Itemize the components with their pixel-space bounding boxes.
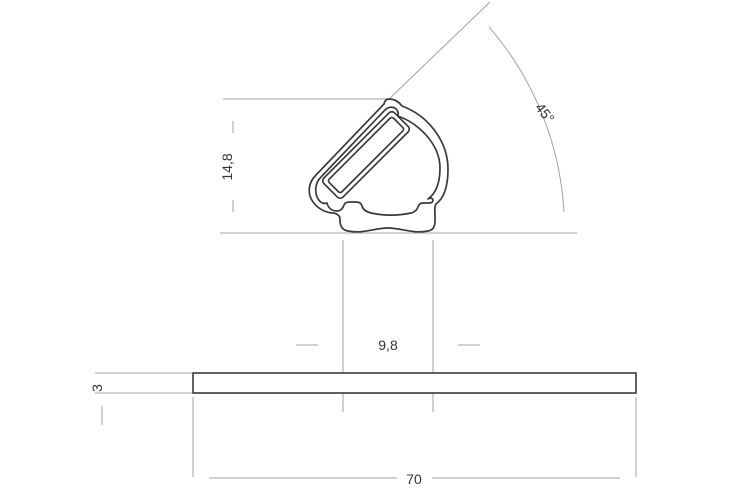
dim-plate-width-label: 70	[406, 471, 422, 487]
dimension-lines	[95, 2, 636, 478]
dimension-labels: 14,8 45° 9,8 3 70	[89, 100, 558, 487]
dim-profile-height-label: 14,8	[219, 153, 235, 180]
channel-inner-rect	[327, 116, 404, 193]
gasket-profile	[309, 99, 448, 232]
profile-outer-contour	[309, 99, 448, 232]
dim-plate-thickness-label: 3	[89, 384, 105, 392]
profile-dimension-drawing: 14,8 45° 9,8 3 70	[0, 0, 750, 500]
technical-drawing-canvas: 14,8 45° 9,8 3 70	[0, 0, 750, 500]
dim-angle-label: 45°	[532, 100, 558, 127]
mounting-plate	[193, 373, 636, 393]
dim-slot-width-label: 9,8	[378, 337, 398, 353]
angle-ray-45	[389, 2, 490, 99]
